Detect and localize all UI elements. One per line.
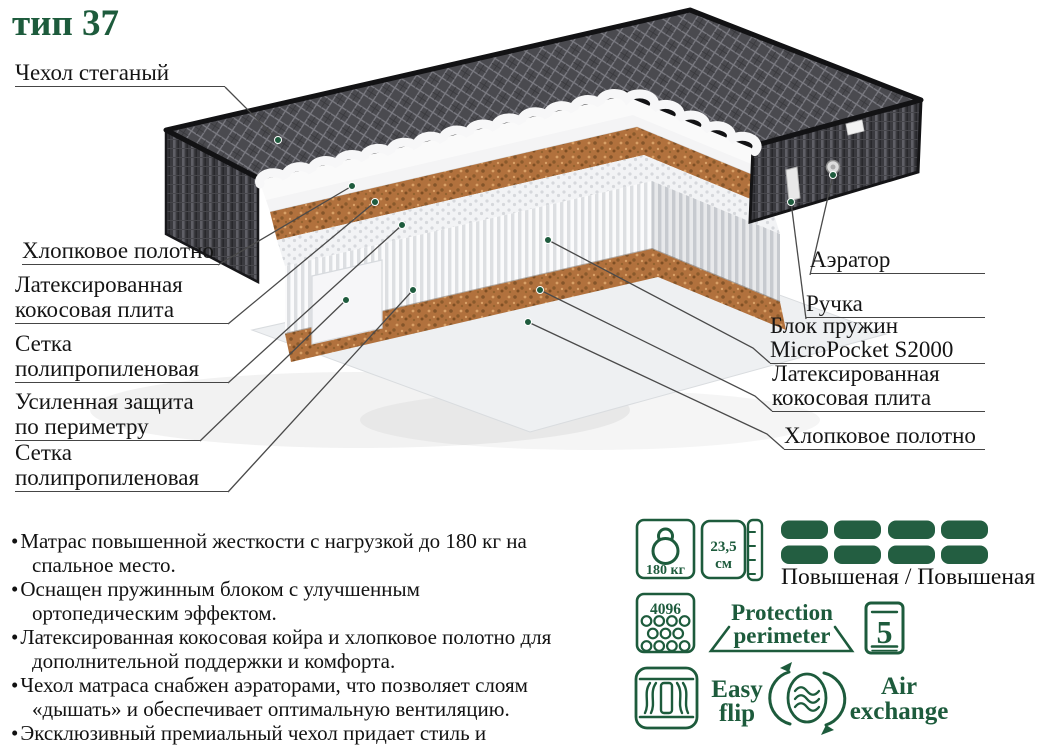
- easy-flip-label-2: flip: [719, 700, 755, 727]
- svg-text:perimeter: perimeter: [733, 623, 830, 648]
- feature-item: Латексированная кокосовая койра и хлопко…: [4, 626, 556, 673]
- air-exchange-icon: [770, 662, 845, 735]
- label-coir-bottom: Латексированная кокосовая плита: [772, 362, 985, 412]
- protection-perimeter-icon: Protection perimeter: [711, 600, 852, 651]
- warranty-icon: 5: [866, 603, 903, 653]
- label-coir-top: Латексированная кокосовая плита: [15, 272, 228, 324]
- label-mesh-top: Сетка полипропиленовая: [15, 331, 228, 383]
- spec-icons: 180 кг 23,5 см Повышеная / П: [636, 520, 1035, 735]
- air-exchange-label-1: Air: [881, 673, 917, 700]
- svg-text:Protection: Protection: [731, 600, 833, 625]
- feature-item: Чехол матраса снабжен аэраторами, что по…: [4, 674, 556, 721]
- label-cotton-bottom: Хлопковое полотно: [784, 424, 985, 450]
- max-load-value: 180 кг: [646, 563, 685, 578]
- easy-flip-label-1: Easy: [711, 676, 763, 703]
- firmness-indicator: [781, 521, 988, 565]
- feature-item: Оснащен пружинным блоком с улучшенным ор…: [4, 578, 556, 625]
- firmness-label: Повышеная / Повышеная: [781, 564, 1035, 590]
- height-value: 23,5: [710, 539, 736, 555]
- page-title: тип 37: [12, 2, 119, 45]
- label-quilted-cover: Чехол стеганый: [15, 60, 225, 87]
- handle: [786, 167, 800, 201]
- label-perimeter-guard: Усиленная защита по периметру: [15, 389, 200, 441]
- ruler-icon: [748, 520, 762, 580]
- feature-item: Матрас повышенной жесткости с нагрузкой …: [4, 530, 556, 577]
- feature-list: Матрас повышенной жесткости с нагрузкой …: [4, 530, 556, 752]
- label-mesh-bottom: Сетка полипропиленовая: [15, 440, 228, 492]
- air-exchange-label-2: exchange: [850, 698, 949, 725]
- label-aerator: Аэратор: [810, 248, 985, 274]
- easy-flip-icon: [636, 668, 697, 728]
- height-unit: см: [715, 556, 732, 572]
- warranty-value: 5: [877, 614, 893, 650]
- springs-count-value: 4096: [650, 601, 681, 618]
- max-load-icon: 180 кг: [637, 520, 694, 578]
- feature-item: Эксклюзивный премиальный чехол придает с…: [4, 722, 556, 752]
- springs-count-icon: 4096: [637, 594, 694, 652]
- label-spring-block: Блок пружин MicroPocket S2000: [770, 314, 985, 364]
- mattress-infographic: 180 кг 23,5 см Повышеная / П: [0, 0, 1039, 752]
- label-cotton-top: Хлопковое полотно: [22, 238, 218, 265]
- height-icon: 23,5 см: [702, 520, 762, 580]
